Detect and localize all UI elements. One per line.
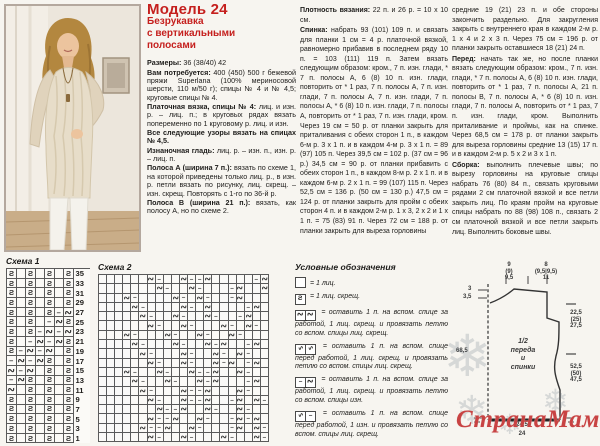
chart-cell <box>123 433 131 442</box>
chart-cell <box>237 340 245 349</box>
chart-cell: – <box>261 433 269 442</box>
chart-cell <box>99 405 107 414</box>
chart-cell: ∿ <box>180 303 188 312</box>
pattern-paragraph: Платочная вязка, спицы № 4: лиц. и изн. … <box>147 103 296 128</box>
chart-cell <box>229 405 237 414</box>
chart-cell <box>220 377 228 386</box>
chart-cell: ∿ <box>131 303 139 312</box>
chart-cell: ∿ <box>220 340 228 349</box>
legend-item: –∿ = оставить 1 п. на вспом. спице за ра… <box>295 376 448 406</box>
chart-cell: – <box>172 405 180 414</box>
chart-cell: – <box>148 349 156 358</box>
chart-row: ∿–∿––∿–∿∿– <box>99 396 269 405</box>
chart-cell: Ƨ <box>64 434 74 444</box>
chart-cell <box>156 294 164 303</box>
chart-cell <box>115 396 123 405</box>
chart-cell: – <box>237 331 245 340</box>
chart-cell <box>164 396 172 405</box>
chart-cell <box>123 312 131 321</box>
chart-cell <box>261 294 269 303</box>
chart-row: ƧƧƧƧ29 <box>7 298 90 308</box>
chart-cell <box>55 434 65 444</box>
chart-row-number: 1 <box>74 434 90 443</box>
chart-cell: ∿ <box>148 359 156 368</box>
chart-cell: ∿ <box>253 433 261 442</box>
legend-item: ∿∿ = оставить 1 п. на вспом. спице за ра… <box>295 309 448 339</box>
chart-cell <box>229 340 237 349</box>
chart-cell: – <box>245 303 253 312</box>
chart-cell <box>156 377 164 386</box>
chart-cell: – <box>7 376 17 386</box>
chart-cell: ∿ <box>156 405 164 414</box>
chart-cell <box>99 312 107 321</box>
pattern-paragraph: Все следующие узоры вязать на спицах № 4… <box>147 129 296 146</box>
chart-cell: – <box>156 424 164 433</box>
chart-cell: ∿ <box>196 331 204 340</box>
chart-cell: Ƨ <box>45 356 55 366</box>
chart-row: ∿–∿–∿–∿– <box>99 433 269 442</box>
chart-cell: ∿ <box>180 321 188 330</box>
chart-cell <box>131 414 139 423</box>
chart-cell: – <box>164 368 172 377</box>
chart-cell <box>261 303 269 312</box>
chart-row: ∿–∿–∿––∿ <box>99 312 269 321</box>
chart-cell <box>196 312 204 321</box>
chart-cell: ∿ <box>237 405 245 414</box>
chart-cell <box>204 284 212 293</box>
chart-cell <box>261 368 269 377</box>
chart-cell: ∿ <box>253 377 261 386</box>
chart-cell <box>99 331 107 340</box>
paragraph-lead: Размеры: <box>147 58 181 67</box>
chart-cell <box>99 424 107 433</box>
chart-cell: Ƨ <box>64 395 74 405</box>
chart-cell: – <box>180 294 188 303</box>
chart-cell <box>107 312 115 321</box>
chart-cell <box>123 387 131 396</box>
chart-cell: – <box>156 396 164 405</box>
chart-cell <box>245 396 253 405</box>
pattern-paragraph: Вам потребуется: 400 (450) 500 г бежевой… <box>147 69 296 102</box>
chart-cell <box>261 312 269 321</box>
chart-cell <box>156 312 164 321</box>
chart-cell <box>107 377 115 386</box>
schematic-center-label: 1/2 переда и спинки <box>494 338 552 372</box>
chart-cell <box>261 321 269 330</box>
chart-cell <box>172 433 180 442</box>
chart-cell: Ƨ <box>26 269 36 279</box>
legend-item: ∿∿ = оставить 1 п. на вспом. спице перед… <box>295 343 448 373</box>
chart-cell: Ƨ <box>64 376 74 386</box>
chart-cell: Ƨ <box>64 424 74 434</box>
chart-cell: – <box>237 312 245 321</box>
chart-cell: – <box>245 377 253 386</box>
chart-row-number: 3 <box>74 424 90 433</box>
chart-cell <box>172 424 180 433</box>
chart-cell: – <box>139 377 147 386</box>
chart-cell <box>99 284 107 293</box>
chart-cell <box>107 294 115 303</box>
chart-cell: Ƨ <box>64 356 74 366</box>
chart-cell: Ƨ <box>7 424 17 434</box>
chart-cell <box>148 405 156 414</box>
chart-cell: Ƨ <box>45 434 55 444</box>
chart-cell <box>212 396 220 405</box>
chart-cell <box>188 414 196 423</box>
chart-cell: ∿ <box>253 359 261 368</box>
chart-cell <box>36 298 46 308</box>
chart-row: ∿–∿–∿–∿– <box>99 321 269 330</box>
chart-cell: ∿ <box>180 275 188 284</box>
chart-cell: – <box>7 356 17 366</box>
chart-cell: Ƨ <box>7 279 17 289</box>
chart-cell: ∿ <box>180 405 188 414</box>
chart-row: ∿–∿––∿∿– <box>99 387 269 396</box>
chart-cell <box>131 396 139 405</box>
chart-cell <box>115 349 123 358</box>
chart-cell <box>99 340 107 349</box>
chart-cell <box>115 321 123 330</box>
chart-cell: ∿ <box>156 368 164 377</box>
legend-item-text: = 1 лиц. <box>308 280 336 287</box>
chart-row-number: 27 <box>74 308 90 317</box>
chart-cell <box>17 327 27 337</box>
chart-cell <box>196 303 204 312</box>
chart-cell <box>156 340 164 349</box>
chart-row: ∿–∿–∿––∿ <box>99 294 269 303</box>
chart-row: ∿ƧƧƧ11 <box>7 385 90 395</box>
paragraph-lead: Сборка: <box>452 162 480 169</box>
chart-row: ƧƧƧƧ9 <box>7 395 90 405</box>
pattern-paragraph: Плотность вязания: 22 п. и 26 р. = 10 х … <box>300 6 448 25</box>
chart-cell <box>115 424 123 433</box>
chart-cell: ∿ <box>123 368 131 377</box>
chart-cell <box>123 424 131 433</box>
chart-cell: ∿ <box>253 424 261 433</box>
chart-cell: ∿ <box>139 312 147 321</box>
chart-cell: – <box>253 321 261 330</box>
chart-cell <box>123 349 131 358</box>
chart-row: ƧƧƧƧ33 <box>7 279 90 289</box>
chart-cell: – <box>204 368 212 377</box>
chart-cell: – <box>196 284 204 293</box>
paragraph-lead: Все следующие узоры вязать на спицах № 4… <box>147 128 296 145</box>
chart-cell: – <box>229 433 237 442</box>
chart-cell <box>107 368 115 377</box>
chart-row-number: 23 <box>74 327 90 336</box>
chart-cell <box>107 424 115 433</box>
chart-cell <box>123 284 131 293</box>
chart-cell: – <box>172 377 180 386</box>
measure-lower-right: 52,5 (50) 47,5 <box>562 364 590 384</box>
chart-cell <box>139 275 147 284</box>
chart-cell: – <box>156 275 164 284</box>
pattern-subtitle: Безрукавка с вертикальными полосами <box>147 16 296 52</box>
chart-cell: ∿ <box>253 414 261 423</box>
chart-cell <box>220 275 228 284</box>
chart-row-number: 25 <box>74 318 90 327</box>
pattern-paragraph: Спинка: набрать 93 (101) 109 п. и связат… <box>300 26 448 236</box>
chart-cell <box>115 312 123 321</box>
chart-cell <box>148 294 156 303</box>
chart-cell <box>139 405 147 414</box>
chart-cell: ∿ <box>148 321 156 330</box>
chart-cell <box>17 405 27 415</box>
chart-cell: ∿ <box>196 414 204 423</box>
chart-cell: ∿ <box>17 376 27 386</box>
chart-cell <box>196 340 204 349</box>
chart-cell: Ƨ <box>7 288 17 298</box>
chart-cell <box>212 321 220 330</box>
chart-cell: – <box>188 275 196 284</box>
chart-cell: ∿ <box>204 303 212 312</box>
chart-cell <box>99 377 107 386</box>
chart-cell <box>204 424 212 433</box>
chart-cell <box>253 331 261 340</box>
chart-cell <box>123 377 131 386</box>
chart-cell <box>212 414 220 423</box>
chart-cell: – <box>196 387 204 396</box>
chart-cell: ∿ <box>64 327 74 337</box>
pattern-intro-column: Модель 24 Безрукавка с вертикальными пол… <box>147 6 296 217</box>
chart-cell <box>139 368 147 377</box>
chart-cell: Ƨ <box>45 279 55 289</box>
chart-cell: ∿ <box>172 294 180 303</box>
chart-cell: Ƨ <box>45 405 55 415</box>
chart-cell: – <box>245 405 253 414</box>
chart-cell: ∿ <box>237 414 245 423</box>
chart-cell <box>17 424 27 434</box>
chart-cell <box>55 366 65 376</box>
chart-cell <box>131 275 139 284</box>
chart-cell <box>180 368 188 377</box>
chart-cell <box>107 433 115 442</box>
chart-cell: – <box>229 321 237 330</box>
chart-cell <box>196 321 204 330</box>
chart-cell: Ƨ <box>45 288 55 298</box>
chart-cell: ∿ <box>212 359 220 368</box>
chart-cell <box>196 405 204 414</box>
chart-cell: – <box>220 359 228 368</box>
chart-cell: Ƨ <box>64 347 74 357</box>
chart-cell: ∿ <box>196 377 204 386</box>
chart-cell: Ƨ <box>7 269 17 279</box>
chart-cell <box>17 434 27 444</box>
chart-cell: – <box>204 377 212 386</box>
chart-cell: ∿ <box>204 396 212 405</box>
chart-cell <box>180 377 188 386</box>
chart-cell <box>107 321 115 330</box>
chart-cell <box>220 414 228 423</box>
chart-cell <box>212 284 220 293</box>
chart-cell <box>55 405 65 415</box>
chart-row-number: 31 <box>74 289 90 298</box>
cross-front-icon: ∿∿ <box>295 344 316 355</box>
instructions-column-1: Плотность вязания: 22 п. и 26 р. = 10 х … <box>300 6 448 237</box>
chart-cell <box>229 387 237 396</box>
chart-cell <box>172 368 180 377</box>
chart-cell <box>212 331 220 340</box>
chart-cell <box>196 359 204 368</box>
chart-cell <box>229 275 237 284</box>
chart-cell <box>107 303 115 312</box>
chart-cell <box>55 288 65 298</box>
chart-cell: – <box>55 308 65 318</box>
page-title: Модель 24 <box>147 6 296 14</box>
chart-row: ƧƧƧƧ3 <box>7 424 90 434</box>
chart-cell <box>55 298 65 308</box>
chart-row-number: 29 <box>74 298 90 307</box>
chart-cell: Ƨ <box>45 308 55 318</box>
chart-row: ƧƧƧƧ5 <box>7 414 90 424</box>
chart-cell: – <box>245 340 253 349</box>
chart-cell: – <box>245 414 253 423</box>
chart-row-number: 17 <box>74 357 90 366</box>
chart-cell <box>99 303 107 312</box>
chart-cell <box>164 433 172 442</box>
chart-cell: Ƨ <box>7 298 17 308</box>
chart-cell <box>115 368 123 377</box>
chart-cell <box>148 331 156 340</box>
chart-cell: ∿ <box>237 387 245 396</box>
chart-cell <box>180 424 188 433</box>
chart-cell: – <box>55 327 65 337</box>
paragraph-lead: Вам потребуется: <box>147 68 211 77</box>
chart-cell: ∿ <box>220 433 228 442</box>
chart-cell: – <box>172 331 180 340</box>
chart-cell: Ƨ <box>45 385 55 395</box>
chart-cell: Ƨ <box>64 414 74 424</box>
chart-cell: ∿ <box>148 414 156 423</box>
chart-cell <box>237 433 245 442</box>
chart-cell: ∿ <box>261 275 269 284</box>
chart-cell <box>36 308 46 318</box>
chart-cell <box>212 387 220 396</box>
chart-cell: ∿ <box>26 366 36 376</box>
measure-top-left: 9 (9) 9,5 <box>498 262 520 282</box>
chart-cell <box>261 414 269 423</box>
legend-title: Условные обозначения <box>295 262 448 272</box>
chart-row: ∿–∿–∿–∿– <box>99 349 269 358</box>
chart2-label: Схема 2 <box>98 262 269 272</box>
chart-cell: ∿ <box>180 396 188 405</box>
chart-cell: – <box>196 424 204 433</box>
chart-cell: ∿ <box>245 312 253 321</box>
legend-item: Ƨ = 1 лиц. скрещ. <box>295 293 448 305</box>
chart-cell <box>220 294 228 303</box>
chart-cell <box>55 414 65 424</box>
knitting-chart-2: Схема 2 ∿–∿––∿–∿∿–∿––∿∿∿–∿–∿––∿∿–∿–∿–∿∿–… <box>98 262 269 446</box>
chart-cell: – <box>188 387 196 396</box>
chart-cell <box>115 414 123 423</box>
chart-cell: – <box>188 396 196 405</box>
chart-cell <box>107 387 115 396</box>
chart-cell: Ƨ <box>26 395 36 405</box>
chart-cell <box>99 396 107 405</box>
paragraph-lead: Полоса А (ширина 7 п.): <box>147 163 232 172</box>
chart-cell: – <box>26 337 36 347</box>
chart-cell: ∿ <box>237 424 245 433</box>
chart-cell: ∿ <box>45 327 55 337</box>
chart-cell <box>229 349 237 358</box>
chart-cell <box>164 321 172 330</box>
chart-cell: ∿ <box>180 349 188 358</box>
chart-cell <box>172 349 180 358</box>
chart-cell <box>245 424 253 433</box>
knit-twist-icon: Ƨ <box>295 294 306 305</box>
chart-cell <box>156 303 164 312</box>
chart-cell: ∿ <box>123 331 131 340</box>
chart-cell: – <box>261 424 269 433</box>
chart-cell <box>107 331 115 340</box>
chart-cell <box>188 294 196 303</box>
chart-cell: Ƨ <box>64 269 74 279</box>
chart-cell: – <box>188 303 196 312</box>
chart-row: –∿ƧƧƧ13 <box>7 376 90 386</box>
chart-cell <box>253 312 261 321</box>
chart-cell <box>212 433 220 442</box>
chart-cell <box>123 275 131 284</box>
chart-cell: – <box>45 337 55 347</box>
chart-cell <box>220 387 228 396</box>
chart-cell <box>17 269 27 279</box>
chart-cell: ∿ <box>164 377 172 386</box>
chart-cell <box>237 377 245 386</box>
chart-cell: – <box>196 368 204 377</box>
chart-cell: ∿ <box>172 340 180 349</box>
chart-row: ƧƧ–∿–∿23 <box>7 327 90 337</box>
chart-cell <box>220 312 228 321</box>
chart-cell: Ƨ <box>7 395 17 405</box>
chart-row-number: 35 <box>74 269 90 278</box>
chart-row-number: 15 <box>74 366 90 375</box>
chart-row: ∿–∿–∿–∿ <box>99 303 269 312</box>
chart-cell <box>123 396 131 405</box>
chart-cell: Ƨ <box>64 385 74 395</box>
chart-cell <box>237 303 245 312</box>
chart-cell: ∿ <box>148 275 156 284</box>
chart-cell <box>220 424 228 433</box>
chart-cell: – <box>196 275 204 284</box>
chart-cell <box>139 321 147 330</box>
paragraph-lead: Платочная вязка, спицы № 4: <box>147 102 256 111</box>
chart-cell: ∿ <box>188 368 196 377</box>
chart-cell: ∿ <box>139 349 147 358</box>
measure-armband-2: 3,5 <box>463 294 471 301</box>
chart-cell: ∿ <box>139 424 147 433</box>
chart-cell <box>17 279 27 289</box>
chart-cell <box>237 321 245 330</box>
chart-cell: ∿ <box>180 387 188 396</box>
chart-cell <box>17 317 27 327</box>
chart-cell: – <box>212 312 220 321</box>
chart-cell <box>148 284 156 293</box>
chart-cell: ∿ <box>204 340 212 349</box>
cross-back-purl-icon: –∿ <box>295 377 316 388</box>
chart-cell: – <box>131 368 139 377</box>
chart-cell <box>139 414 147 423</box>
chart-cell <box>99 321 107 330</box>
chart-cell <box>99 414 107 423</box>
chart-cell <box>17 414 27 424</box>
chart-row: ∿–∿–∿–∿– <box>99 331 269 340</box>
chart-cell <box>164 303 172 312</box>
chart-cell: – <box>188 349 196 358</box>
chart-row: ƧƧƧƧ35 <box>7 269 90 279</box>
chart-cell <box>148 340 156 349</box>
chart-cell: Ƨ <box>64 288 74 298</box>
chart-cell <box>164 340 172 349</box>
